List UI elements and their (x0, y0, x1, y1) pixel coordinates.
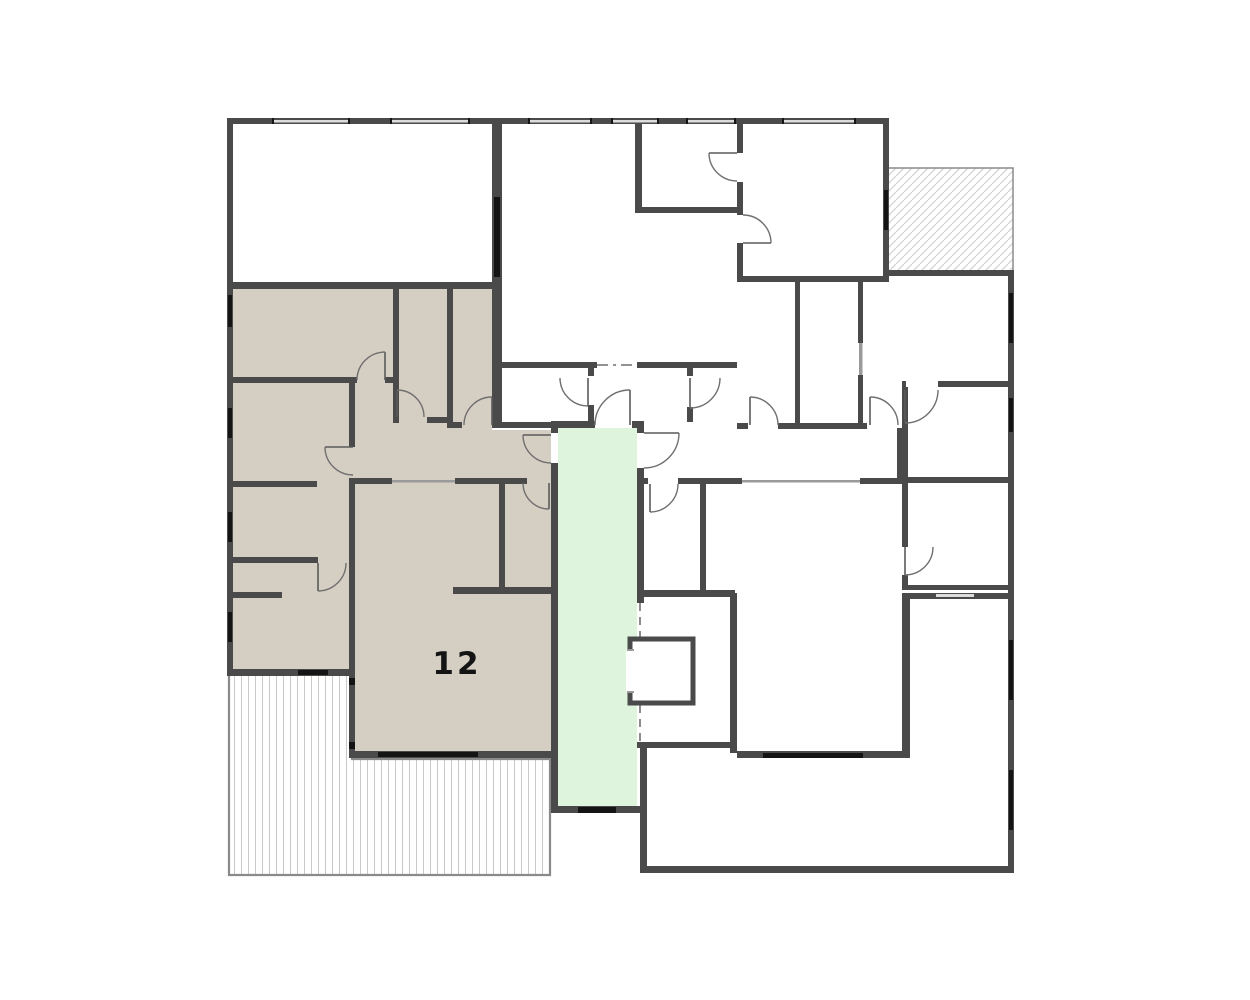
door-swing (709, 153, 737, 181)
door-swing (690, 378, 720, 408)
door-swing (644, 433, 679, 468)
door-swing (743, 215, 771, 243)
floor-plan-svg: 12 (0, 0, 1250, 1000)
unit-number-label: 12 (432, 646, 481, 682)
door-swing (595, 390, 630, 425)
entrance-door-mark (578, 807, 616, 813)
door-swing (750, 397, 778, 425)
door-swing (905, 390, 938, 423)
door-swing (560, 378, 588, 406)
elevator-shaft-walls (630, 639, 693, 703)
door-swing (870, 397, 898, 425)
balcony-hatched-region (888, 168, 1013, 272)
door-swing (905, 547, 933, 575)
elevator-door-opening (626, 650, 634, 692)
elevator-shaft (626, 639, 693, 703)
staircase-lobby-region (558, 428, 637, 806)
door-swing (650, 484, 678, 512)
